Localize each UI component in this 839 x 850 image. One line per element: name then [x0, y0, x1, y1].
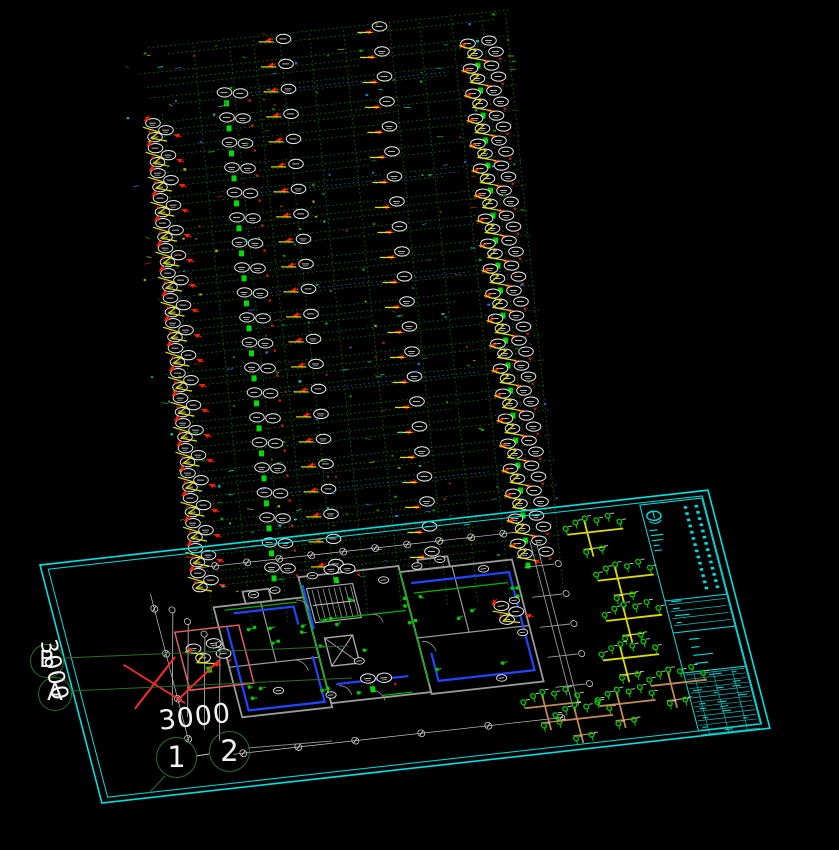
circuit-tree: [561, 512, 635, 560]
grid-bubble-2: 2: [209, 731, 250, 772]
circuit-tree: [597, 637, 671, 685]
grid-bubble-1: 1: [156, 737, 197, 778]
drawing-sheet: [40, 490, 770, 803]
cad-viewport[interactable]: B A 1 2 3000 3000: [0, 0, 839, 850]
cad-drawing: [0, 0, 839, 850]
circuit-tree: [593, 683, 667, 731]
circuit-tree: [644, 663, 718, 711]
circuit-tree: [591, 558, 665, 606]
circuit-tree: [518, 685, 592, 733]
circuit-tree: [600, 598, 674, 646]
title-block: [640, 498, 762, 735]
